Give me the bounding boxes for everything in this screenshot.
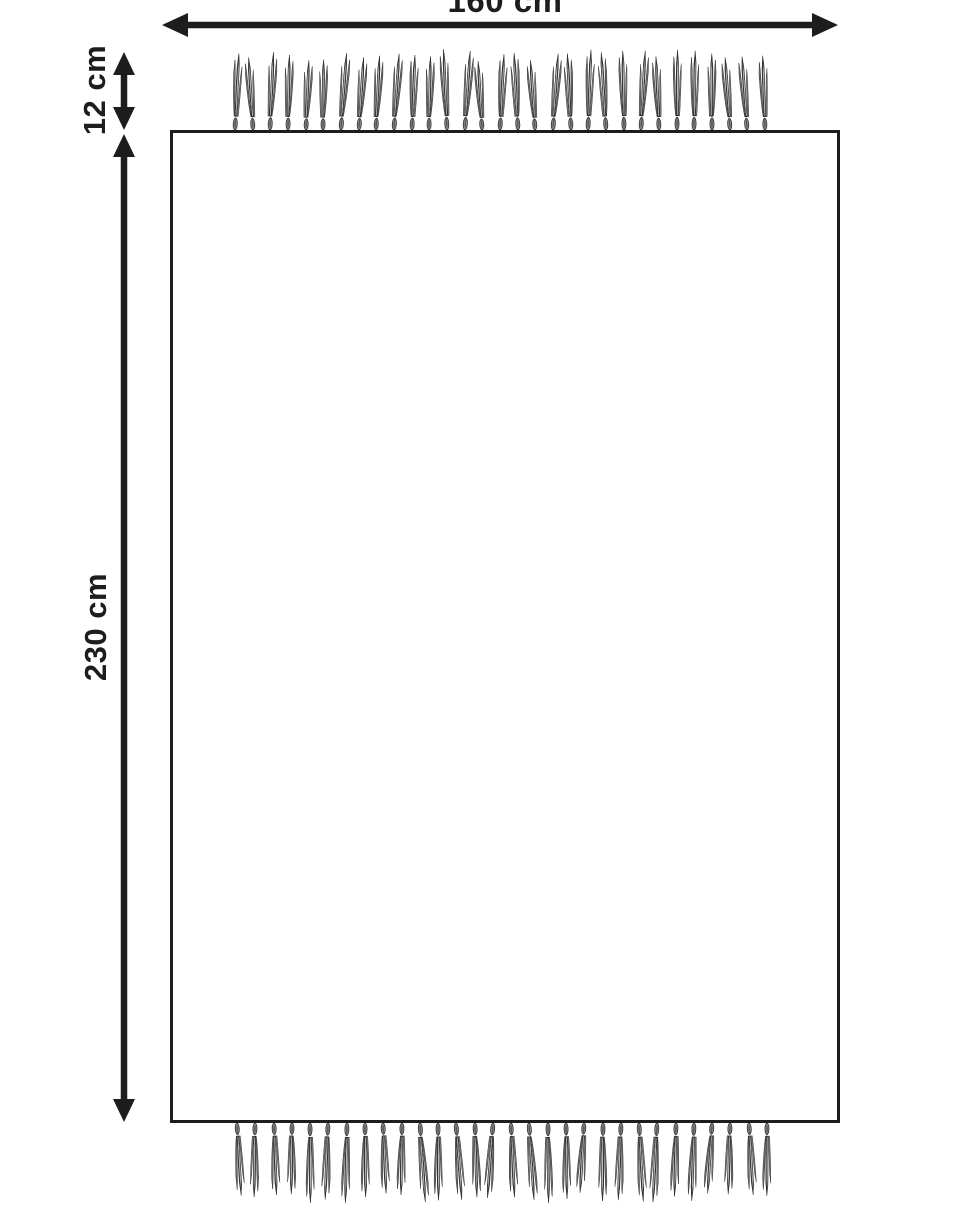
bottom-fringe	[229, 1122, 775, 1200]
arrowhead-down-icon	[113, 1099, 135, 1122]
arrowhead-left-icon	[162, 13, 188, 37]
rug-dimension-diagram: 160 cm 12 cm 230 cm	[0, 0, 970, 1213]
fringe-length-arrow	[110, 51, 138, 131]
tassel	[315, 59, 332, 131]
tassel	[503, 1122, 523, 1198]
height-arrow	[110, 133, 138, 1123]
tassel	[721, 1122, 739, 1195]
arrowhead-right-icon	[812, 13, 838, 37]
tassel	[298, 60, 317, 132]
tassel	[572, 1122, 592, 1194]
tassel	[686, 50, 703, 131]
tassel	[357, 1122, 374, 1198]
tassel	[755, 55, 773, 131]
tassel	[614, 50, 631, 131]
tassel	[368, 55, 388, 131]
tassel	[430, 1122, 446, 1201]
arrowhead-up-icon	[113, 52, 135, 75]
tassel	[741, 1122, 761, 1196]
tassel	[262, 51, 282, 131]
tassel	[247, 1122, 264, 1198]
tassel	[559, 53, 579, 132]
tassel	[593, 51, 614, 131]
tassel	[734, 56, 755, 132]
tassel	[759, 1122, 775, 1196]
fringe-length-label: 12 cm	[78, 30, 112, 150]
tassel	[302, 1122, 318, 1204]
arrowhead-up-icon	[113, 134, 135, 157]
tassel	[435, 48, 455, 131]
tassel	[280, 54, 298, 131]
width-label: 160 cm	[355, 0, 655, 19]
tassel	[337, 1122, 355, 1204]
top-fringe	[227, 53, 773, 131]
tassel	[669, 49, 685, 131]
height-label: 230 cm	[79, 547, 113, 707]
tassel	[610, 1122, 629, 1201]
tassel	[283, 1122, 300, 1195]
tassel	[318, 1122, 337, 1201]
tassel	[700, 1122, 721, 1195]
tassel	[266, 1122, 284, 1196]
tassel	[470, 60, 490, 131]
tassel	[375, 1122, 394, 1194]
tassel	[594, 1122, 610, 1202]
tassel	[540, 1122, 557, 1204]
tassel	[523, 59, 544, 131]
tassel	[645, 1122, 665, 1204]
tassel	[404, 54, 423, 131]
arrowhead-down-icon	[113, 107, 135, 130]
tassel	[648, 56, 667, 132]
tassel	[392, 1122, 409, 1196]
rug-outline	[170, 130, 840, 1123]
tassel	[666, 1122, 684, 1197]
